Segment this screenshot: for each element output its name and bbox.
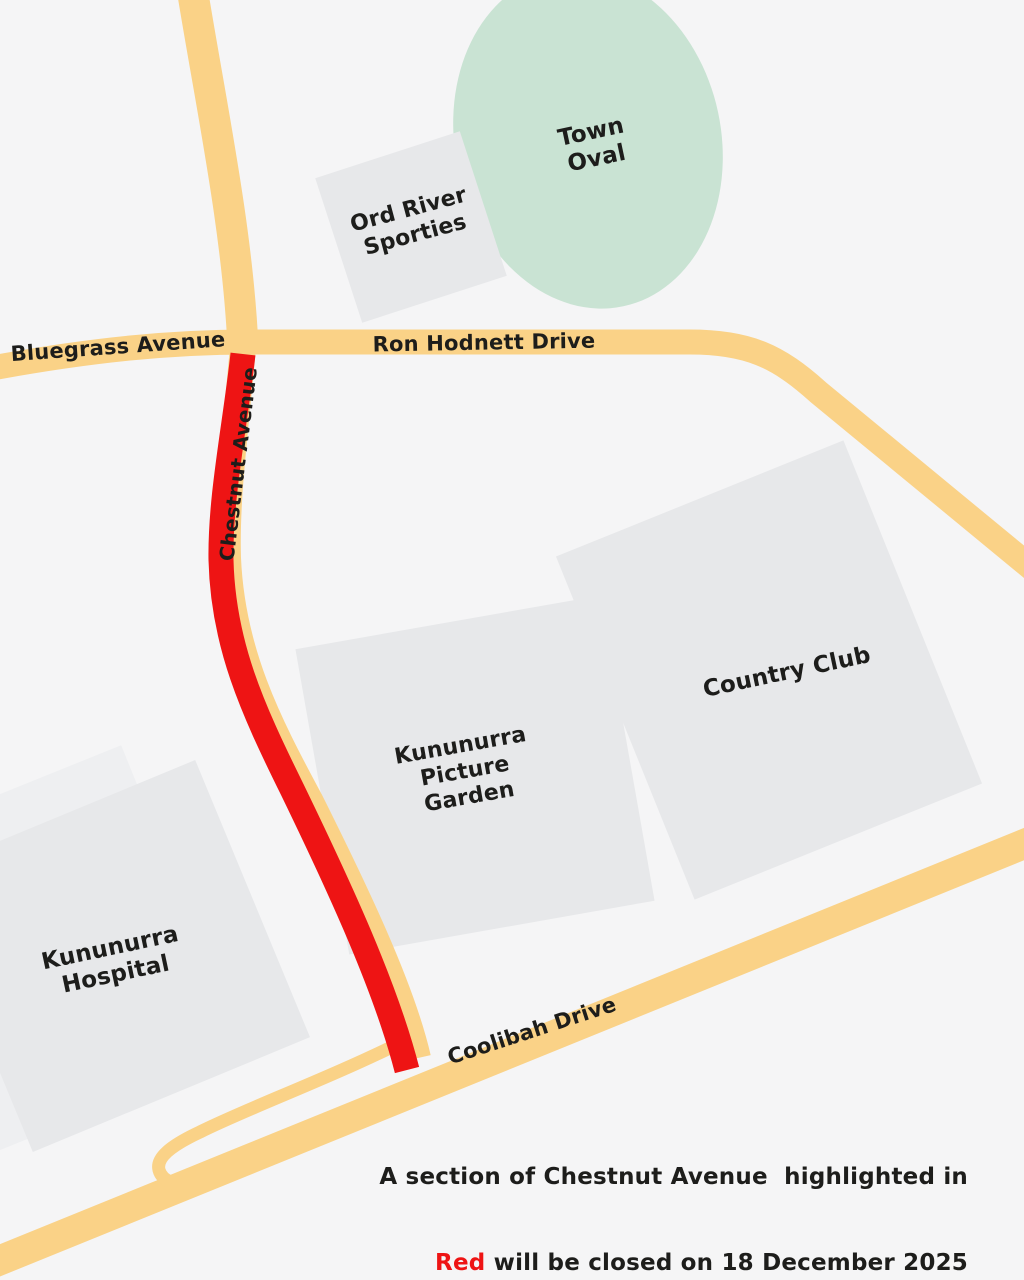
closure-notice-line-2: Red will be closed on 18 December 2025: [348, 1249, 968, 1278]
road-north-connector: [192, 0, 243, 348]
closure-notice-line-2-rest: will be closed on 18 December 2025: [485, 1250, 968, 1276]
closure-notice-line-1: A section of Chestnut Avenue highlighted…: [348, 1163, 968, 1192]
road-label-ron-hodnett-drive: Ron Hodnett Drive: [372, 329, 595, 358]
road-closure-map: Bluegrass Avenue Ron Hodnett Drive Chest…: [0, 0, 1024, 1280]
roads-layer: [0, 0, 1024, 1280]
closure-notice-red-word: Red: [435, 1250, 485, 1276]
road-bluegrass-ron-hodnett: [0, 342, 1024, 570]
closure-notice: A section of Chestnut Avenue highlighted…: [348, 1106, 968, 1280]
